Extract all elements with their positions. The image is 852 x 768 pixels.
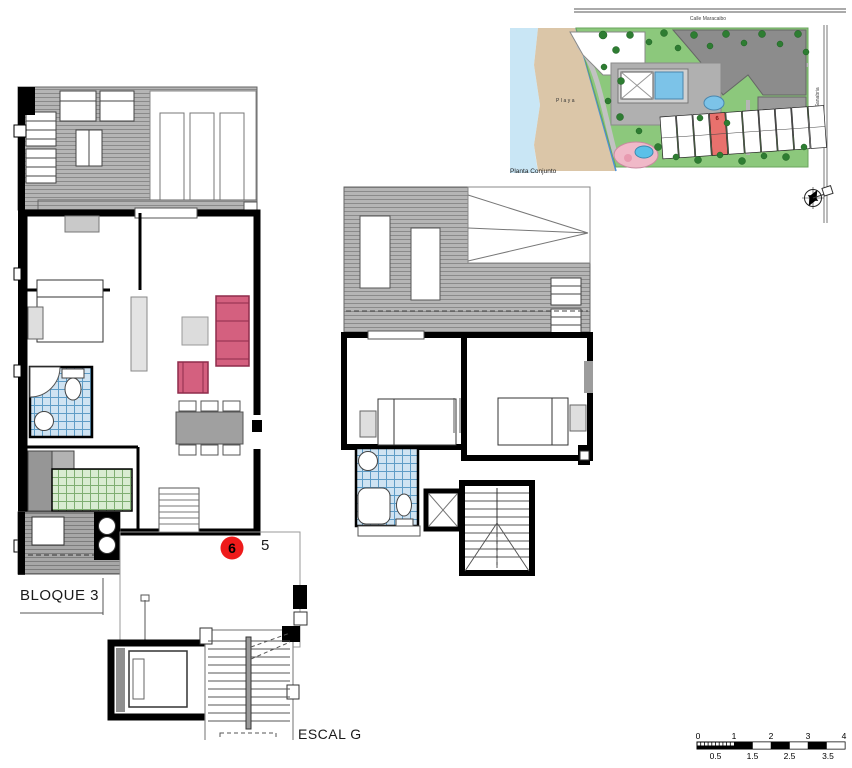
coffee-table xyxy=(182,317,208,345)
svg-text:3: 3 xyxy=(806,731,811,741)
block-label: BLOQUE 3 xyxy=(20,587,99,604)
bed xyxy=(498,398,568,445)
street-top-label: Calle Maracaibo xyxy=(690,16,726,22)
bed xyxy=(378,399,456,445)
bathtub xyxy=(358,488,390,524)
elevator xyxy=(426,491,460,529)
toilet xyxy=(65,378,81,400)
terrace-mat xyxy=(411,228,440,300)
terrace-mat xyxy=(360,216,390,288)
washer xyxy=(32,517,64,545)
scale-bar: 0 1 2 3 4 0.5 1.5 2.5 3.5 xyxy=(693,730,849,762)
sideboard xyxy=(131,297,147,371)
bedroom-left xyxy=(344,331,464,447)
wardrobe xyxy=(65,216,99,232)
bathroom xyxy=(356,448,420,536)
unit-6-marker[interactable]: 6 xyxy=(218,534,246,562)
left-floor-plan xyxy=(10,85,310,740)
svg-text:1.5: 1.5 xyxy=(747,751,759,761)
svg-text:3.5: 3.5 xyxy=(822,751,834,761)
street-top-lines xyxy=(574,9,846,12)
upper-terrace xyxy=(18,87,257,210)
wall-corner xyxy=(18,87,35,115)
bedroom-right xyxy=(464,335,593,465)
elevator xyxy=(111,643,211,717)
laundry-machine xyxy=(99,518,116,535)
interior-stairs xyxy=(159,488,199,532)
terrace-door xyxy=(135,208,197,218)
sink xyxy=(35,412,54,431)
nightstand xyxy=(360,411,376,437)
sink xyxy=(359,452,378,471)
drawing-sheet: 6 5 BLOQUE 3 ESCAL G xyxy=(0,0,852,768)
scale-top-labels: 0 1 2 3 4 xyxy=(696,731,847,741)
site-plan: Calle Maracaibo Calle Lago Sanabria Play… xyxy=(508,5,852,240)
stair-core-label: ESCAL G xyxy=(298,726,362,742)
bathroom xyxy=(30,367,92,437)
stairwell xyxy=(200,626,300,740)
unit-5-number: 5 xyxy=(261,537,269,554)
svg-text:0: 0 xyxy=(696,731,701,741)
sofa xyxy=(216,296,249,366)
kitchen-counter xyxy=(28,451,52,511)
stairwell xyxy=(462,483,532,573)
laundry-terrace xyxy=(18,512,120,574)
svg-text:4: 4 xyxy=(842,731,847,741)
svg-text:0.5: 0.5 xyxy=(710,751,722,761)
svg-text:2.5: 2.5 xyxy=(784,751,796,761)
kids-pool-area xyxy=(614,142,658,168)
site-plan-title: Planta Conjunto xyxy=(510,168,557,175)
pool xyxy=(655,72,683,99)
pond xyxy=(704,96,724,110)
scale-cells xyxy=(734,742,845,749)
north-arrow-icon xyxy=(802,186,833,209)
beach-label: Playa xyxy=(556,98,576,104)
pergola-slats xyxy=(160,113,244,205)
right-floor-plan xyxy=(338,183,603,628)
toilet xyxy=(397,494,412,516)
nightstand xyxy=(570,405,586,431)
laundry-machine xyxy=(99,537,116,554)
unit-marker-number: 6 xyxy=(228,540,236,556)
svg-text:2: 2 xyxy=(769,731,774,741)
nightstand xyxy=(28,307,43,339)
dining-table xyxy=(176,412,243,444)
scale-bottom-labels: 0.5 1.5 2.5 3.5 xyxy=(710,751,835,761)
bed xyxy=(37,280,103,342)
svg-text:1: 1 xyxy=(732,731,737,741)
